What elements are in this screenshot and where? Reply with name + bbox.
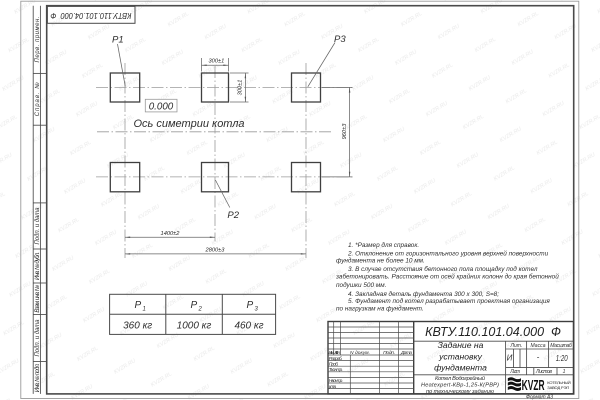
svg-text:Лист: Лист	[509, 369, 520, 375]
svg-text:по нагрузкам на фундамент.: по нагрузкам на фундамент.	[336, 304, 424, 312]
svg-text:960±3: 960±3	[342, 123, 348, 140]
svg-text:P1: P1	[112, 35, 124, 46]
svg-text:Листов: Листов	[535, 369, 552, 375]
svg-text:P: P	[135, 300, 142, 311]
svg-text:Котел Водогрейный: Котел Водогрейный	[435, 375, 485, 382]
svg-text:-: -	[537, 353, 540, 362]
svg-text:KVZR: KVZR	[522, 377, 545, 394]
svg-text:2. Отклонение от горизонтальн: 2. Отклонение от горизонтального уровня …	[347, 249, 549, 257]
svg-text:N докум.: N докум.	[350, 350, 370, 356]
svg-text:фундамента не более 10 мм.: фундамента не более 10 мм.	[336, 256, 425, 264]
svg-text:Проб.: Проб.	[329, 361, 339, 367]
svg-text:P3: P3	[334, 34, 346, 45]
svg-text:Инв. № подл.: Инв. № подл.	[34, 363, 41, 392]
svg-text:КВТУ.110.101.04.000 Ф: КВТУ.110.101.04.000 Ф	[425, 325, 561, 339]
svg-text:1400±2: 1400±2	[161, 231, 181, 237]
svg-text:1. *Размер для справок.: 1. *Размер для справок.	[348, 241, 419, 249]
svg-text:Н.контр.: Н.контр.	[329, 378, 343, 384]
svg-text:1000 кг: 1000 кг	[177, 320, 212, 331]
svg-text:Подп.: Подп.	[383, 350, 395, 356]
svg-text:утв.: утв.	[328, 385, 337, 390]
svg-text:Разраб.: Разраб.	[329, 356, 343, 362]
svg-text:1: 1	[563, 369, 566, 375]
svg-text:Дата: Дата	[400, 350, 412, 356]
svg-text:Инв. № дубл.: Инв. № дубл.	[34, 252, 41, 280]
svg-text:установку: установку	[438, 351, 482, 361]
svg-text:Ось симетрии котла: Ось симетрии котла	[134, 118, 245, 130]
svg-text:Формат А3: Формат А3	[526, 394, 553, 400]
svg-text:5. Фундамент под котел разраб: 5. Фундамент под котел разрабатывает про…	[348, 297, 550, 305]
svg-text:300±1: 300±1	[238, 80, 244, 96]
svg-text:Т.контр.: Т.контр.	[329, 367, 343, 373]
svg-text:360 кг: 360 кг	[123, 320, 152, 331]
svg-text:4. Закладная деталь фундамент: 4. Закладная деталь фундамента 300 x 300…	[348, 290, 499, 298]
svg-text:Лист: Лист	[333, 350, 340, 356]
svg-text:P: P	[247, 300, 254, 311]
svg-text:Heatexpert-КВр-1,25-К(РВР): Heatexpert-КВр-1,25-К(РВР)	[421, 382, 499, 388]
svg-text:Масса: Масса	[531, 343, 546, 349]
svg-text:0.000: 0.000	[149, 101, 174, 112]
svg-text:Подп. и дата: Подп. и дата	[35, 207, 41, 245]
svg-text:300±1: 300±1	[209, 58, 225, 64]
svg-text:Задание на: Задание на	[438, 340, 484, 350]
svg-text:забетонировать. Расстояние от: забетонировать. Расстояние от осей крайн…	[335, 273, 559, 281]
svg-text:1:20: 1:20	[556, 354, 568, 363]
svg-text:КВТУ.110.101.04.000 Ф: КВТУ.110.101.04.000 Ф	[50, 11, 132, 20]
svg-text:3. В случае отсутствия бетонн: 3. В случае отсутствия бетонного пола пл…	[348, 265, 538, 273]
svg-text:2: 2	[198, 307, 203, 313]
svg-text:фундамента: фундамента	[434, 363, 487, 373]
svg-text:P: P	[191, 300, 198, 311]
svg-text:Взам. инв. №: Взам. инв. №	[34, 284, 41, 313]
svg-text:И: И	[507, 353, 513, 362]
svg-text:Лит.: Лит.	[510, 343, 523, 349]
svg-text:Перв. примен.: Перв. примен.	[35, 17, 41, 63]
svg-text:Масштаб: Масштаб	[550, 343, 572, 349]
svg-text:1: 1	[143, 307, 146, 313]
svg-text:Справ. №: Справ. №	[34, 82, 41, 117]
svg-text:P2: P2	[227, 210, 239, 221]
svg-text:Подп. и дата: Подп. и дата	[35, 319, 41, 357]
svg-text:ЗАВОД РЭП: ЗАВОД РЭП	[547, 385, 569, 390]
svg-text:2800±3: 2800±3	[205, 248, 226, 254]
svg-text:по техническому заданию: по техническому заданию	[426, 389, 495, 395]
svg-text:460 кг: 460 кг	[234, 320, 263, 331]
svg-text:подушки 500 мм.: подушки 500 мм.	[336, 281, 386, 289]
